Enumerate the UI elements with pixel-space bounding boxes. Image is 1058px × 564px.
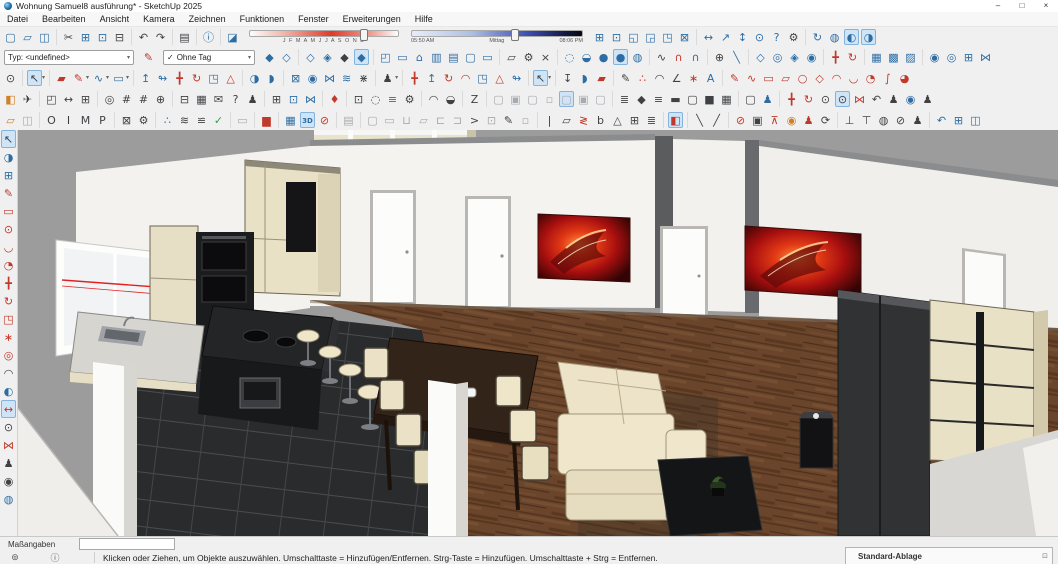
eraser-icon[interactable]: ▰ — [54, 70, 69, 86]
toolbar-row-4: ◧✈◰↔⊞◎##⊕⊟▦✉?♟⊞⊡⋈♦⊡◌≡⚙◠◒Z▢▣▢▫▢▣▢≣◆≡▬▢■▦▢… — [0, 88, 1058, 109]
slope-z-icon[interactable]: Z — [467, 91, 482, 107]
model-viewport[interactable] — [18, 130, 1058, 536]
select-icon[interactable]: ↖ — [1, 130, 16, 148]
menu-zeichnen[interactable]: Zeichnen — [182, 12, 233, 27]
swap-component-icon[interactable]: ⊠ — [677, 29, 692, 45]
red-arrows-icon[interactable]: ≷ — [576, 112, 591, 128]
style-hiddenline-icon[interactable]: ◇ — [279, 49, 294, 65]
shopping-cart-icon[interactable]: ⊟ — [177, 91, 192, 107]
view-shaded-icon[interactable]: ◍ — [827, 29, 842, 45]
edit-box-icon[interactable]: ⊡ — [351, 91, 366, 107]
mesh-ball-icon[interactable]: ◍ — [876, 112, 891, 128]
map-pin-icon[interactable]: ♦ — [327, 91, 342, 107]
pillar-left[interactable] — [93, 362, 137, 536]
shadow-date-slider[interactable]: J F M A M J J A S O N D — [249, 30, 399, 44]
walk-figure-icon[interactable]: ♟ — [886, 91, 901, 107]
shape-extrude-icon[interactable]: ▱ — [416, 112, 431, 128]
right-closet[interactable] — [838, 290, 930, 536]
maximize-button[interactable]: □ — [1010, 0, 1034, 12]
close-button[interactable]: × — [1034, 0, 1058, 12]
rotate-2-icon[interactable]: ↻ — [441, 70, 456, 86]
walk-icon[interactable]: ♟ — [1, 454, 16, 472]
zoom-tool-icon[interactable]: ⊙ — [3, 70, 18, 86]
line-a-icon[interactable]: ╲ — [692, 112, 707, 128]
axes-box-icon[interactable]: ⊡ — [286, 91, 301, 107]
door-tool-icon[interactable]: ◧ — [3, 91, 18, 107]
mail-icon[interactable]: ✉ — [211, 91, 226, 107]
toolbar-group: ⊠◉⋈≋⋇ — [283, 70, 374, 86]
rect-red-icon[interactable]: ▭ — [761, 70, 776, 86]
menu-bearbeiten[interactable]: Bearbeiten — [35, 12, 93, 27]
menu-erweiterungen[interactable]: Erweiterungen — [336, 12, 408, 27]
weld-edges-icon[interactable]: ⋇ — [356, 70, 371, 86]
hex-dark-icon[interactable]: ◆ — [634, 91, 649, 107]
resize-diag-icon[interactable]: ↗ — [718, 29, 733, 45]
toolbar-group: ∿∩∩ — [649, 49, 706, 65]
walk-info-icon[interactable]: ♟ — [910, 112, 925, 128]
edit-type-icon[interactable]: ✎ — [141, 49, 156, 65]
line-endpoint-icon[interactable]: ╲ — [729, 49, 744, 65]
column-b-icon[interactable]: ⊤ — [859, 112, 874, 128]
push-pull-icon[interactable]: ↥ — [138, 70, 153, 86]
paint-sphere-icon[interactable]: ◑ — [247, 70, 262, 86]
shape-rrect-icon[interactable]: ▢ — [365, 112, 380, 128]
scale-circle-1-icon[interactable]: ◉ — [927, 49, 942, 65]
date-slider-thumb[interactable] — [360, 29, 368, 41]
toolbar-group: ⊘▣⊼◉♟⟳ — [728, 112, 836, 128]
zoom-window-icon[interactable]: ⊠ — [288, 70, 303, 86]
bar-dark-icon[interactable]: ▬ — [668, 91, 683, 107]
toolbox-icon[interactable]: ▣ — [750, 112, 765, 128]
resize-x-icon[interactable]: ↔ — [701, 29, 716, 45]
door-1[interactable] — [370, 190, 416, 304]
cube-6-icon[interactable]: ▣ — [576, 91, 591, 107]
folder-orange-icon[interactable]: ▱ — [3, 112, 18, 128]
person-placer-icon[interactable]: ♟ — [380, 70, 395, 86]
style-textured-icon[interactable]: ◆ — [354, 49, 369, 65]
open-file-icon[interactable]: ▱ — [20, 29, 35, 45]
letter-p-icon[interactable]: P — [95, 112, 110, 128]
opacity-hatch-icon[interactable]: ◍ — [630, 49, 645, 65]
brick-wall-icon[interactable]: ▤ — [341, 112, 356, 128]
new-page-icon[interactable]: ▢ — [743, 91, 758, 107]
sketchy-edges-icon[interactable]: ∿ — [654, 49, 669, 65]
measurements-input[interactable] — [79, 538, 175, 550]
menu-hilfe[interactable]: Hilfe — [408, 12, 440, 27]
cube-4-icon[interactable]: ▫ — [542, 91, 557, 107]
tag-combo-arrow-icon[interactable]: ▾ — [248, 54, 251, 61]
eyedropper-icon[interactable]: ✎ — [618, 70, 633, 86]
circle-icon[interactable]: ⊙ — [1, 220, 16, 238]
arc-3pt-icon[interactable]: ◡ — [846, 70, 861, 86]
cone-icon[interactable]: △ — [610, 112, 625, 128]
help-2-icon[interactable]: ? — [228, 91, 243, 107]
print-icon[interactable]: ▤ — [177, 29, 192, 45]
menu-datei[interactable]: Datei — [0, 12, 35, 27]
sector-tool-icon[interactable]: ◕ — [897, 70, 912, 86]
parallelogram-icon[interactable]: ▱ — [559, 112, 574, 128]
column-a-icon[interactable]: ⊥ — [842, 112, 857, 128]
menu-funktionen[interactable]: Funktionen — [233, 12, 292, 27]
cut-icon[interactable]: ✂ — [61, 29, 76, 45]
push-pull-2-icon[interactable]: ↥ — [424, 70, 439, 86]
lasso-icon[interactable]: ◌ — [368, 91, 383, 107]
scale-circles-icon[interactable]: ◉ — [305, 70, 320, 86]
hex-tool-4-icon[interactable]: ◉ — [804, 49, 819, 65]
toggle-shadows-icon[interactable]: ◪ — [225, 29, 240, 45]
stack-dark-icon[interactable]: ≣ — [617, 91, 632, 107]
rotate-copy-icon[interactable]: ↻ — [845, 49, 860, 65]
layer-set-icon[interactable]: ≣ — [644, 112, 659, 128]
pan-tool-icon[interactable]: ↻ — [801, 91, 816, 107]
image-frame-icon[interactable]: ▭ — [235, 112, 250, 128]
opacity-0-icon[interactable]: ◌ — [562, 49, 577, 65]
select-icon[interactable]: ↖ — [27, 70, 42, 86]
coffee-table[interactable] — [658, 456, 762, 536]
move-icon[interactable]: ╋ — [1, 274, 16, 292]
toolbar-group: ✎ — [138, 49, 159, 65]
add-location-icon[interactable]: ⊕ — [712, 49, 727, 65]
tray-options-icon[interactable]: ⊡ — [1042, 552, 1048, 560]
preferences-icon[interactable]: ⚙ — [786, 29, 801, 45]
mesh-1-icon[interactable]: ▦ — [869, 49, 884, 65]
layers-dark-icon[interactable]: ≡ — [651, 91, 666, 107]
arc-gray-icon[interactable]: ◠ — [652, 70, 667, 86]
redo-icon[interactable]: ↷ — [153, 29, 168, 45]
move-2-icon[interactable]: ╋ — [407, 70, 422, 86]
hex-tool-2-icon[interactable]: ◎ — [770, 49, 785, 65]
floor-speaker[interactable] — [800, 412, 833, 468]
shape-bar-icon[interactable]: ▭ — [382, 112, 397, 128]
line-tool-icon[interactable]: ✎ — [71, 70, 86, 86]
help-tool-icon[interactable]: ? — [769, 29, 784, 45]
axes-icon[interactable]: ∗ — [1, 328, 16, 346]
copy-doc-icon[interactable]: ⊞ — [269, 91, 284, 107]
color-dots-icon[interactable]: ∴ — [160, 112, 175, 128]
scale-tool-icon[interactable]: ◳ — [206, 70, 221, 86]
tray-panel[interactable]: Standard-Ablage ⊡ — [845, 547, 1053, 564]
style-backedges-icon[interactable]: ◈ — [320, 49, 335, 65]
shape-cyl-icon[interactable]: ⊏ — [433, 112, 448, 128]
shape-u-icon[interactable]: ⊔ — [399, 112, 414, 128]
circle-tool-icon[interactable]: ○ — [795, 70, 810, 86]
toolbar-group: ◑◗ — [242, 70, 282, 86]
letter-i-icon[interactable]: I — [61, 112, 76, 128]
section-plane-icon[interactable]: ▭ — [395, 49, 410, 65]
type-combo[interactable]: Typ: <undefined>▾ — [4, 50, 134, 65]
arc-icon[interactable]: ◡ — [1, 238, 16, 256]
send-plane-icon[interactable]: ✈ — [20, 91, 35, 107]
roof-box-icon[interactable]: ⌂ — [412, 49, 427, 65]
sketchup-logo-icon — [4, 2, 12, 10]
line-b-icon[interactable]: ╱ — [709, 112, 724, 128]
new-file-icon[interactable]: ▢ — [3, 29, 18, 45]
layer-search-icon[interactable]: ≌ — [194, 112, 209, 128]
painting-right[interactable] — [745, 226, 861, 298]
box-eye-icon[interactable]: ⊡ — [484, 112, 499, 128]
look-around-icon[interactable]: ◉ — [1, 472, 16, 490]
label-tool-icon[interactable]: ∠ — [669, 70, 684, 86]
threed-text-icon[interactable]: 3D — [300, 112, 315, 128]
flip-2-icon[interactable]: △ — [492, 70, 507, 86]
look-around-icon[interactable]: ◉ — [903, 91, 918, 107]
follow-me-icon[interactable]: ↬ — [155, 70, 170, 86]
crate-a-icon[interactable]: ▥ — [429, 49, 444, 65]
view-perspective-icon[interactable]: ◑ — [861, 29, 876, 45]
magnet-red-icon[interactable]: ∩ — [671, 49, 686, 65]
grid-pencil-icon[interactable]: ▦ — [283, 112, 298, 128]
half-circle-icon[interactable]: ◒ — [443, 91, 458, 107]
round-rect-icon[interactable]: ▢ — [685, 91, 700, 107]
orbit-red-icon[interactable]: ╋ — [784, 91, 799, 107]
scene-svg — [18, 130, 1058, 536]
arc-move-icon[interactable]: ◠ — [458, 70, 473, 86]
paint-icon[interactable]: ◑ — [1, 148, 16, 166]
follow-2-icon[interactable]: ↬ — [509, 70, 524, 86]
stamp-icon[interactable]: ↧ — [560, 70, 575, 86]
table-grid-icon[interactable]: ⊞ — [627, 112, 642, 128]
scale-icon[interactable]: ◳ — [1, 310, 16, 328]
tag-combo[interactable]: ✓Ohne Tag▾ — [163, 50, 255, 65]
doc-red-icon[interactable]: ▆ — [259, 112, 274, 128]
undo-icon[interactable]: ↶ — [136, 29, 151, 45]
letter-o-icon[interactable]: O — [44, 112, 59, 128]
hash-icon[interactable]: # — [119, 91, 134, 107]
list-red-icon[interactable]: ≡ — [385, 91, 400, 107]
view-iso-icon[interactable]: ◐ — [844, 29, 859, 45]
style-shaded-icon[interactable]: ◆ — [262, 49, 277, 65]
scale-circle-2-icon[interactable]: ◎ — [944, 49, 959, 65]
pie-tool-icon[interactable]: ◔ — [863, 70, 878, 86]
hex-tool-1-icon[interactable]: ◇ — [753, 49, 768, 65]
toolbar-group: ↶↷ — [131, 29, 171, 45]
pillar-middle[interactable] — [428, 380, 468, 536]
wardrobe[interactable] — [245, 160, 340, 296]
save-gray-icon[interactable]: ◫ — [20, 112, 35, 128]
axes-tool-icon[interactable]: ∗ — [686, 70, 701, 86]
line-icon[interactable]: ✎ — [1, 184, 16, 202]
magnet-blue-icon[interactable]: ∩ — [688, 49, 703, 65]
door-3[interactable] — [660, 226, 708, 320]
freehand-icon[interactable]: ∿ — [91, 70, 106, 86]
rectangle-tool-dropdown-icon[interactable]: ▾ — [126, 74, 129, 81]
resize-y-icon[interactable]: ↕ — [735, 29, 750, 45]
zoom-extents-icon[interactable]: ⋈ — [852, 91, 867, 107]
freehand-dropdown-icon[interactable]: ▾ — [106, 74, 109, 81]
rotate-up-icon[interactable]: ⟳ — [818, 112, 833, 128]
pan-icon[interactable]: ↔ — [1, 400, 16, 418]
link-boxes-icon[interactable]: ⋈ — [303, 91, 318, 107]
settings-2-icon[interactable]: ⚙ — [521, 49, 536, 65]
export-box-icon[interactable]: ⊠ — [119, 112, 134, 128]
scale-2-icon[interactable]: ◳ — [475, 70, 490, 86]
door-2[interactable] — [465, 196, 511, 308]
group-stack-icon[interactable]: ⊞ — [961, 49, 976, 65]
no-entry-icon[interactable]: ⊘ — [733, 112, 748, 128]
menu-ansicht[interactable]: Ansicht — [93, 12, 137, 27]
orbit-hand-icon[interactable]: ◍ — [1, 490, 16, 508]
gear-dark-icon[interactable]: ⚙ — [402, 91, 417, 107]
zoom-selection-icon[interactable]: ⊙ — [752, 29, 767, 45]
view-orbit-icon[interactable]: ↻ — [810, 29, 825, 45]
toolbar-group: ▢▱◫ — [0, 29, 55, 45]
divider-line-icon[interactable]: | — [542, 112, 557, 128]
mesh-3-icon[interactable]: ▨ — [903, 49, 918, 65]
person-placer-dropdown-icon[interactable]: ▾ — [395, 74, 398, 81]
type-combo-arrow-icon[interactable]: ▾ — [127, 54, 130, 61]
person-blue-icon[interactable]: ♟ — [760, 91, 775, 107]
blank-page-icon[interactable]: ▢ — [463, 49, 478, 65]
rectangle-tool-icon[interactable]: ▭ — [111, 70, 126, 86]
arc-up-icon[interactable]: ◠ — [426, 91, 441, 107]
painting-left[interactable] — [538, 214, 630, 282]
hammer-icon[interactable]: ⊼ — [767, 112, 782, 128]
eye-off-icon[interactable]: ⊘ — [893, 112, 908, 128]
flip-tool-icon[interactable]: △ — [223, 70, 238, 86]
lock-group-icon[interactable]: ◲ — [643, 29, 658, 45]
opacity-50-icon[interactable]: ◒ — [579, 49, 594, 65]
menu-kamera[interactable]: Kamera — [136, 12, 182, 27]
paste-icon[interactable]: ⊡ — [95, 29, 110, 45]
opacity-100-icon[interactable]: ● — [613, 49, 628, 65]
line-tool-dropdown-icon[interactable]: ▾ — [86, 74, 89, 81]
close-x-icon[interactable]: × — [538, 49, 553, 65]
orbit-icon[interactable]: ◐ — [1, 382, 16, 400]
previous-view-icon[interactable]: ↶ — [869, 91, 884, 107]
menu-fenster[interactable]: Fenster — [291, 12, 336, 27]
cube-5-icon[interactable]: ▢ — [559, 91, 574, 107]
person-timer-icon[interactable]: ♟ — [245, 91, 260, 107]
toolbar-group: ▰✎▾∿▾▭▾ — [49, 70, 132, 86]
make-group-icon[interactable]: ⊞ — [592, 29, 607, 45]
b-tool-icon[interactable]: b — [593, 112, 608, 128]
move-copy-icon[interactable]: ╋ — [828, 49, 843, 65]
line-red-icon[interactable]: ✎ — [727, 70, 742, 86]
cube-3-icon[interactable]: ▢ — [525, 91, 540, 107]
no-sign-icon[interactable]: ⊘ — [317, 112, 332, 128]
style-monochrome-icon[interactable]: ◆ — [337, 49, 352, 65]
model-info-icon[interactable]: ⓘ — [201, 29, 216, 45]
time-slider-thumb[interactable] — [511, 29, 519, 41]
cube-7-icon[interactable]: ▢ — [593, 91, 608, 107]
box-top-icon[interactable]: ◰ — [44, 91, 59, 107]
arc-2pt-icon[interactable]: ◠ — [829, 70, 844, 86]
gear-3-icon[interactable]: ⚙ — [136, 112, 151, 128]
polygon-tool-icon[interactable]: ◇ — [812, 70, 827, 86]
flip-axis-icon[interactable]: ⋈ — [322, 70, 337, 86]
toolbar-group: ⊡◌≡⚙ — [346, 91, 420, 107]
paint-bucket-icon[interactable]: ◗ — [264, 70, 279, 86]
zoom-window-2-icon[interactable]: ⊙ — [835, 91, 850, 107]
rotated-rect-icon[interactable]: ▱ — [778, 70, 793, 86]
freehand-red-icon[interactable]: ∿ — [744, 70, 759, 86]
zoom-hash-icon[interactable]: ⊕ — [153, 91, 168, 107]
toolbar-group: ◧✈ — [0, 91, 38, 107]
door-red-icon[interactable]: ◧ — [668, 112, 683, 128]
table-blue-icon[interactable]: ⊞ — [951, 112, 966, 128]
save-icon[interactable]: ◫ — [37, 29, 52, 45]
component-icon[interactable]: ⊞ — [1, 166, 16, 184]
layer-stack-icon[interactable]: ≋ — [177, 112, 192, 128]
crate-b-icon[interactable]: ▤ — [446, 49, 461, 65]
toolbar-group: ↧◗▰ — [555, 70, 612, 86]
delete-icon[interactable]: ⊟ — [112, 29, 127, 45]
shape-box-icon[interactable]: ⊐ — [450, 112, 465, 128]
copy-icon[interactable]: ⊞ — [78, 29, 93, 45]
width-dim-icon[interactable]: ↔ — [61, 91, 76, 107]
protractor-icon[interactable]: ◠ — [1, 364, 16, 382]
select-2-dropdown-icon[interactable]: ▾ — [548, 74, 551, 81]
bucket-2-icon[interactable]: ◗ — [577, 70, 592, 86]
hash-strike-icon[interactable]: # — [136, 91, 151, 107]
shape-arrow-icon[interactable]: > — [467, 112, 482, 128]
toolbar-group: ↖▾ — [528, 70, 554, 86]
person-up-icon[interactable]: ♟ — [801, 112, 816, 128]
mesh-2-icon[interactable]: ▩ — [886, 49, 901, 65]
folder-icon[interactable]: ▱ — [504, 49, 519, 65]
dim-zoom-icon[interactable]: ◎ — [1, 346, 16, 364]
rotate-icon[interactable]: ↻ — [1, 292, 16, 310]
outline-rect-icon[interactable]: ▭ — [480, 49, 495, 65]
box-dim-icon[interactable]: ⊞ — [78, 91, 93, 107]
edit-group-icon[interactable]: ⊡ — [609, 29, 624, 45]
rotate-tool-icon[interactable]: ↻ — [189, 70, 204, 86]
status-hint: Klicken oder Ziehen, um Objekte auszuwäh… — [103, 553, 658, 563]
rings-icon[interactable]: ◎ — [102, 91, 117, 107]
zoom-extents-icon[interactable]: ⋈ — [1, 436, 16, 454]
zoom-icon[interactable]: ⊙ — [1, 418, 16, 436]
eraser-2-icon[interactable]: ▰ — [594, 70, 609, 86]
point-marks-icon[interactable]: ∴ — [635, 70, 650, 86]
round-rect-fill-icon[interactable]: ■ — [702, 91, 717, 107]
opacity-75-icon[interactable]: ● — [596, 49, 611, 65]
move-tool-icon[interactable]: ╋ — [172, 70, 187, 86]
soften-edges-icon[interactable]: ≋ — [339, 70, 354, 86]
sector-icon[interactable]: ◔ — [1, 256, 16, 274]
hide-rest-icon[interactable]: ◰ — [378, 49, 393, 65]
cube-1-icon[interactable]: ▢ — [491, 91, 506, 107]
explode-group-icon[interactable]: ◱ — [626, 29, 641, 45]
bezier-tool-icon[interactable]: ∫ — [880, 70, 895, 86]
text-tool-icon[interactable]: A — [703, 70, 718, 86]
toolbar-group: ◰↔⊞ — [39, 91, 96, 107]
grid-cube-icon[interactable]: ▦ — [719, 91, 734, 107]
shadow-time-slider[interactable]: 05:50 AMMittag08:06 PM — [411, 30, 583, 44]
calendar-icon[interactable]: ▦ — [194, 91, 209, 107]
check-green-icon[interactable]: ✓ — [211, 112, 226, 128]
flip-mirror-icon[interactable]: ⋈ — [978, 49, 993, 65]
hex-tool-3-icon[interactable]: ◈ — [787, 49, 802, 65]
kitchen-island[interactable] — [198, 306, 340, 430]
make-component-icon[interactable]: ◳ — [660, 29, 675, 45]
zoom-3-icon[interactable]: ⊙ — [818, 91, 833, 107]
select-dropdown-icon[interactable]: ▾ — [42, 74, 45, 81]
rectangle-icon[interactable]: ▭ — [1, 202, 16, 220]
letter-m-icon[interactable]: M — [78, 112, 93, 128]
pencil-small-icon[interactable]: ✎ — [501, 112, 516, 128]
box-small-icon[interactable]: ▫ — [518, 112, 533, 128]
minimize-button[interactable]: – — [986, 0, 1010, 12]
style-wireframe-icon[interactable]: ◇ — [303, 49, 318, 65]
geolocation-status-icon[interactable]: ⊚ — [8, 553, 22, 563]
undo-blue-icon[interactable]: ↶ — [934, 112, 949, 128]
cube-2-icon[interactable]: ▣ — [508, 91, 523, 107]
walk-tool-icon[interactable]: ♟ — [920, 91, 935, 107]
credits-status-icon[interactable]: ⓘ — [48, 551, 62, 564]
select-2-icon[interactable]: ↖ — [533, 70, 548, 86]
split-view-icon[interactable]: ◫ — [968, 112, 983, 128]
palette-icon[interactable]: ◉ — [784, 112, 799, 128]
